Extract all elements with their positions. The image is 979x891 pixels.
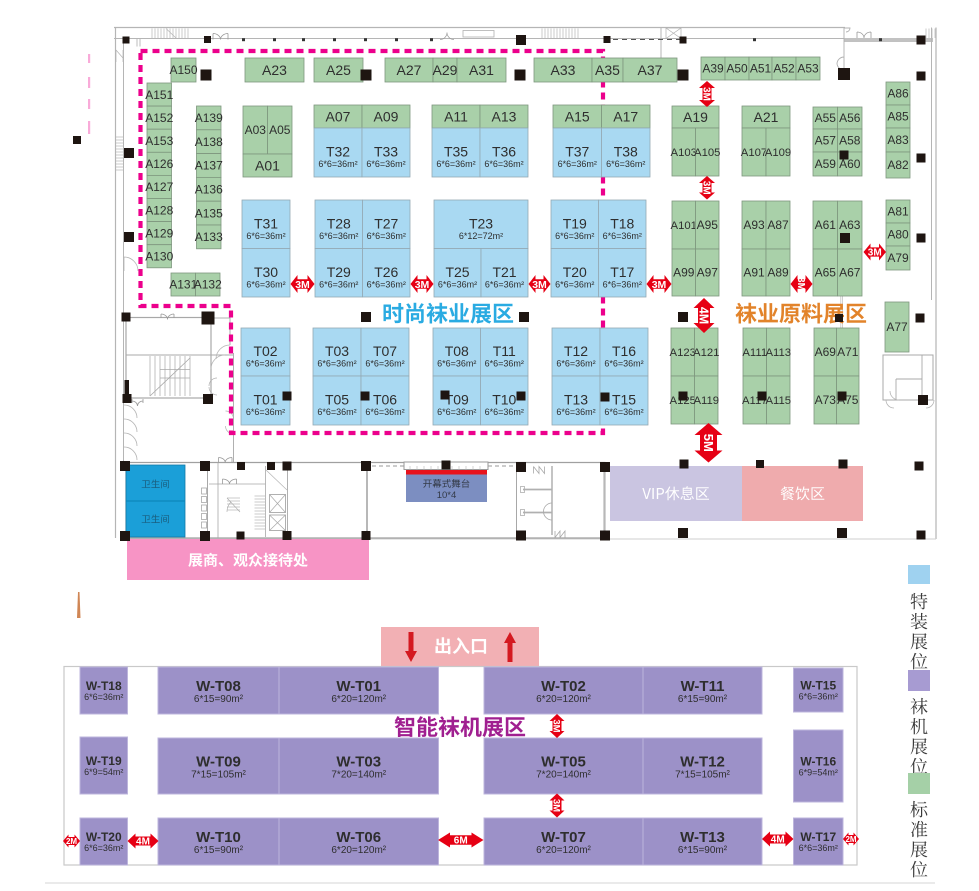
svg-text:A105: A105 bbox=[694, 147, 720, 159]
svg-text:A31: A31 bbox=[469, 62, 494, 78]
svg-text:T31: T31 bbox=[254, 215, 278, 231]
svg-text:A61: A61 bbox=[815, 218, 837, 232]
svg-text:A119: A119 bbox=[693, 395, 719, 407]
svg-text:T27: T27 bbox=[374, 215, 398, 231]
svg-text:3M: 3M bbox=[868, 248, 882, 259]
svg-text:A79: A79 bbox=[887, 251, 909, 265]
svg-text:A09: A09 bbox=[374, 109, 399, 125]
svg-text:T03: T03 bbox=[325, 343, 349, 359]
svg-text:A138: A138 bbox=[195, 135, 223, 149]
svg-text:7*20=140m²: 7*20=140m² bbox=[331, 770, 386, 781]
svg-text:6*6=36m²: 6*6=36m² bbox=[84, 692, 123, 702]
svg-text:T01: T01 bbox=[253, 392, 277, 408]
svg-text:6*6=36m²: 6*6=36m² bbox=[246, 359, 285, 369]
svg-text:3M: 3M bbox=[700, 181, 711, 195]
svg-text:T23: T23 bbox=[469, 215, 493, 231]
svg-text:W-T20: W-T20 bbox=[86, 830, 122, 844]
svg-text:T33: T33 bbox=[374, 144, 398, 160]
svg-text:W-T05: W-T05 bbox=[541, 754, 586, 771]
svg-text:6*6=36m²: 6*6=36m² bbox=[799, 843, 838, 853]
svg-text:A139: A139 bbox=[195, 111, 223, 125]
svg-text:A81: A81 bbox=[887, 205, 909, 219]
svg-text:A137: A137 bbox=[195, 159, 223, 173]
svg-text:6*6=36m²: 6*6=36m² bbox=[366, 159, 405, 169]
svg-text:A39: A39 bbox=[702, 62, 724, 76]
svg-text:6*6=36m²: 6*6=36m² bbox=[246, 279, 285, 289]
svg-text:A93: A93 bbox=[743, 218, 765, 232]
svg-text:6M: 6M bbox=[454, 836, 468, 847]
svg-text:3M: 3M bbox=[652, 279, 667, 291]
svg-text:A52: A52 bbox=[773, 62, 795, 76]
svg-text:6*6=36m²: 6*6=36m² bbox=[437, 407, 476, 417]
svg-text:3M: 3M bbox=[415, 279, 430, 291]
svg-text:6*6=36m²: 6*6=36m² bbox=[556, 359, 595, 369]
svg-text:6*15=90m²: 6*15=90m² bbox=[194, 845, 244, 856]
svg-text:W-T13: W-T13 bbox=[680, 829, 725, 846]
svg-text:T18: T18 bbox=[610, 215, 634, 231]
svg-text:A50: A50 bbox=[726, 62, 748, 76]
svg-text:A128: A128 bbox=[145, 203, 173, 217]
svg-text:6*9=54m²: 6*9=54m² bbox=[84, 767, 123, 777]
svg-text:6*6=36m²: 6*6=36m² bbox=[365, 359, 404, 369]
svg-text:T37: T37 bbox=[565, 144, 589, 160]
svg-text:6*6=36m²: 6*6=36m² bbox=[604, 407, 643, 417]
svg-text:T20: T20 bbox=[563, 264, 587, 280]
svg-text:T21: T21 bbox=[492, 264, 516, 280]
svg-text:A132: A132 bbox=[194, 278, 222, 292]
svg-text:6*6=36m²: 6*6=36m² bbox=[317, 407, 356, 417]
svg-text:T16: T16 bbox=[612, 343, 636, 359]
svg-text:6*9=54m²: 6*9=54m² bbox=[799, 768, 838, 778]
svg-text:A67: A67 bbox=[839, 266, 861, 280]
svg-text:A86: A86 bbox=[887, 87, 909, 101]
svg-text:T35: T35 bbox=[444, 144, 468, 160]
svg-text:W-T17: W-T17 bbox=[800, 830, 836, 844]
svg-text:A153: A153 bbox=[145, 134, 173, 148]
svg-text:A80: A80 bbox=[887, 228, 909, 242]
svg-text:6*6=36m²: 6*6=36m² bbox=[555, 279, 594, 289]
svg-text:6*20=120m²: 6*20=120m² bbox=[331, 845, 386, 856]
svg-text:A115: A115 bbox=[765, 395, 791, 407]
svg-text:3M: 3M bbox=[795, 277, 806, 291]
svg-text:6*6=36m²: 6*6=36m² bbox=[558, 159, 597, 169]
svg-text:A99: A99 bbox=[673, 266, 695, 280]
svg-text:6*6=36m²: 6*6=36m² bbox=[437, 359, 476, 369]
svg-text:A73: A73 bbox=[815, 393, 837, 407]
svg-text:A63: A63 bbox=[839, 218, 861, 232]
svg-text:6*15=90m²: 6*15=90m² bbox=[194, 694, 244, 705]
svg-text:A129: A129 bbox=[145, 226, 173, 240]
svg-text:A85: A85 bbox=[887, 110, 909, 124]
svg-text:A150: A150 bbox=[169, 63, 197, 77]
svg-text:6*6=36m²: 6*6=36m² bbox=[799, 692, 838, 702]
svg-text:2M: 2M bbox=[845, 835, 856, 844]
svg-text:6*15=90m²: 6*15=90m² bbox=[678, 694, 728, 705]
svg-text:A121: A121 bbox=[693, 347, 719, 359]
svg-text:6*6=36m²: 6*6=36m² bbox=[603, 279, 642, 289]
svg-text:6*6=36m²: 6*6=36m² bbox=[485, 407, 524, 417]
svg-text:4M: 4M bbox=[697, 307, 711, 324]
svg-text:W-T12: W-T12 bbox=[680, 754, 725, 771]
svg-text:6*6=36m²: 6*6=36m² bbox=[317, 359, 356, 369]
svg-text:A56: A56 bbox=[839, 111, 861, 125]
svg-text:5M: 5M bbox=[701, 434, 716, 452]
svg-text:6*6=36m²: 6*6=36m² bbox=[603, 231, 642, 241]
svg-text:A103: A103 bbox=[671, 147, 697, 159]
svg-text:T12: T12 bbox=[564, 343, 588, 359]
svg-text:A123: A123 bbox=[670, 347, 696, 359]
svg-text:A69: A69 bbox=[815, 345, 837, 359]
svg-text:7*15=105m²: 7*15=105m² bbox=[191, 770, 246, 781]
svg-text:A135: A135 bbox=[195, 206, 223, 220]
svg-text:2M: 2M bbox=[66, 837, 77, 846]
svg-text:A17: A17 bbox=[613, 109, 638, 125]
svg-text:4M: 4M bbox=[136, 837, 150, 848]
svg-text:3M: 3M bbox=[700, 87, 711, 101]
svg-text:6*20=120m²: 6*20=120m² bbox=[536, 694, 591, 705]
svg-text:A59: A59 bbox=[815, 157, 837, 171]
svg-text:T11: T11 bbox=[493, 343, 516, 359]
svg-text:T36: T36 bbox=[492, 144, 516, 160]
svg-text:A25: A25 bbox=[326, 62, 351, 78]
svg-text:W-T15: W-T15 bbox=[800, 679, 836, 693]
svg-text:T32: T32 bbox=[326, 144, 350, 160]
svg-text:A21: A21 bbox=[754, 109, 779, 125]
svg-text:6*20=120m²: 6*20=120m² bbox=[331, 694, 386, 705]
svg-text:A130: A130 bbox=[145, 249, 173, 263]
svg-text:A65: A65 bbox=[815, 266, 837, 280]
svg-text:6*6=36m²: 6*6=36m² bbox=[367, 279, 406, 289]
svg-text:A29: A29 bbox=[433, 62, 458, 78]
svg-text:6*6=36m²: 6*6=36m² bbox=[436, 159, 475, 169]
svg-text:A55: A55 bbox=[815, 111, 837, 125]
svg-text:A33: A33 bbox=[551, 62, 576, 78]
svg-text:A136: A136 bbox=[195, 183, 223, 197]
svg-text:A11: A11 bbox=[444, 109, 468, 125]
svg-text:6*20=120m²: 6*20=120m² bbox=[536, 845, 591, 856]
svg-text:T17: T17 bbox=[610, 264, 634, 280]
svg-text:A07: A07 bbox=[326, 109, 351, 125]
svg-text:T19: T19 bbox=[563, 215, 587, 231]
svg-text:A15: A15 bbox=[565, 109, 590, 125]
svg-text:3M: 3M bbox=[295, 279, 310, 291]
svg-text:6*6=36m²: 6*6=36m² bbox=[604, 359, 643, 369]
svg-text:A35: A35 bbox=[595, 62, 620, 78]
svg-text:T26: T26 bbox=[374, 264, 398, 280]
svg-text:W-T02: W-T02 bbox=[541, 678, 586, 695]
svg-text:A58: A58 bbox=[839, 134, 861, 148]
svg-text:T08: T08 bbox=[445, 343, 469, 359]
svg-text:3M: 3M bbox=[532, 279, 547, 291]
svg-text:A133: A133 bbox=[195, 230, 223, 244]
svg-text:6*6=36m²: 6*6=36m² bbox=[485, 279, 524, 289]
svg-text:W-T01: W-T01 bbox=[336, 678, 381, 695]
svg-text:6*6=36m²: 6*6=36m² bbox=[485, 359, 524, 369]
svg-text:A57: A57 bbox=[815, 134, 837, 148]
svg-text:A111: A111 bbox=[742, 347, 767, 359]
svg-text:6*6=36m²: 6*6=36m² bbox=[319, 279, 358, 289]
svg-text:A03: A03 bbox=[245, 123, 267, 137]
svg-text:7*20=140m²: 7*20=140m² bbox=[536, 770, 591, 781]
svg-text:6*6=36m²: 6*6=36m² bbox=[246, 231, 285, 241]
svg-text:T28: T28 bbox=[327, 215, 351, 231]
svg-text:3M: 3M bbox=[551, 719, 562, 732]
svg-text:W-T10: W-T10 bbox=[196, 829, 241, 846]
svg-text:T30: T30 bbox=[254, 264, 278, 280]
svg-text:W-T16: W-T16 bbox=[800, 755, 836, 769]
svg-text:A127: A127 bbox=[145, 180, 173, 194]
svg-text:A53: A53 bbox=[797, 62, 819, 76]
svg-text:6*6=36m²: 6*6=36m² bbox=[555, 231, 594, 241]
svg-text:A82: A82 bbox=[887, 158, 909, 172]
svg-text:A51: A51 bbox=[750, 62, 772, 76]
svg-text:6*6=36m²: 6*6=36m² bbox=[319, 231, 358, 241]
svg-text:T29: T29 bbox=[327, 264, 351, 280]
svg-text:A87: A87 bbox=[767, 218, 789, 232]
svg-text:6*6=36m²: 6*6=36m² bbox=[365, 407, 404, 417]
svg-text:W-T08: W-T08 bbox=[196, 678, 241, 695]
svg-text:7*15=105m²: 7*15=105m² bbox=[675, 770, 730, 781]
svg-text:W-T19: W-T19 bbox=[86, 754, 122, 768]
svg-text:A97: A97 bbox=[697, 266, 719, 280]
svg-text:A23: A23 bbox=[262, 62, 287, 78]
svg-text:W-T06: W-T06 bbox=[336, 829, 381, 846]
svg-text:10*4: 10*4 bbox=[437, 490, 457, 501]
svg-text:4M: 4M bbox=[771, 835, 785, 846]
svg-text:W-T03: W-T03 bbox=[336, 754, 381, 771]
svg-text:T13: T13 bbox=[564, 392, 588, 408]
svg-text:A13: A13 bbox=[492, 109, 517, 125]
svg-text:6*6=36m²: 6*6=36m² bbox=[367, 231, 406, 241]
svg-text:A107: A107 bbox=[741, 147, 767, 159]
svg-text:6*12=72m²: 6*12=72m² bbox=[459, 231, 503, 241]
svg-text:A77: A77 bbox=[886, 320, 908, 334]
svg-text:6*6=36m²: 6*6=36m² bbox=[318, 159, 357, 169]
svg-text:6*15=90m²: 6*15=90m² bbox=[678, 845, 728, 856]
svg-text:W-T18: W-T18 bbox=[86, 679, 122, 693]
svg-text:A91: A91 bbox=[743, 266, 765, 280]
svg-text:6*6=36m²: 6*6=36m² bbox=[246, 407, 285, 417]
svg-text:6*6=36m²: 6*6=36m² bbox=[606, 159, 645, 169]
svg-text:A27: A27 bbox=[397, 62, 422, 78]
svg-text:A37: A37 bbox=[638, 62, 663, 78]
svg-text:A95: A95 bbox=[697, 218, 719, 232]
svg-text:T15: T15 bbox=[612, 392, 636, 408]
svg-text:A109: A109 bbox=[765, 147, 791, 159]
svg-text:A71: A71 bbox=[837, 345, 859, 359]
svg-text:A113: A113 bbox=[765, 347, 791, 359]
svg-text:A05: A05 bbox=[269, 123, 291, 137]
svg-text:T38: T38 bbox=[614, 144, 638, 160]
svg-text:A19: A19 bbox=[683, 109, 708, 125]
svg-text:A83: A83 bbox=[887, 133, 909, 147]
svg-text:A89: A89 bbox=[767, 266, 789, 280]
svg-text:T02: T02 bbox=[253, 343, 277, 359]
svg-text:A151: A151 bbox=[145, 88, 173, 102]
svg-text:6*6=36m²: 6*6=36m² bbox=[484, 159, 523, 169]
svg-text:A152: A152 bbox=[145, 111, 173, 125]
svg-text:6*6=36m²: 6*6=36m² bbox=[84, 843, 123, 853]
svg-text:A01: A01 bbox=[255, 158, 280, 174]
svg-text:6*6=36m²: 6*6=36m² bbox=[556, 407, 595, 417]
svg-text:T05: T05 bbox=[325, 392, 349, 408]
svg-text:T25: T25 bbox=[445, 264, 469, 280]
svg-text:6*6=36m²: 6*6=36m² bbox=[438, 279, 477, 289]
svg-text:W-T11: W-T11 bbox=[681, 678, 725, 695]
svg-text:3M: 3M bbox=[551, 799, 562, 812]
svg-text:T07: T07 bbox=[373, 343, 397, 359]
svg-text:W-T07: W-T07 bbox=[541, 829, 586, 846]
svg-text:W-T09: W-T09 bbox=[196, 754, 241, 771]
svg-text:T10: T10 bbox=[492, 392, 516, 408]
svg-text:A101: A101 bbox=[671, 220, 697, 232]
svg-text:T06: T06 bbox=[373, 392, 397, 408]
svg-text:A126: A126 bbox=[145, 157, 173, 171]
